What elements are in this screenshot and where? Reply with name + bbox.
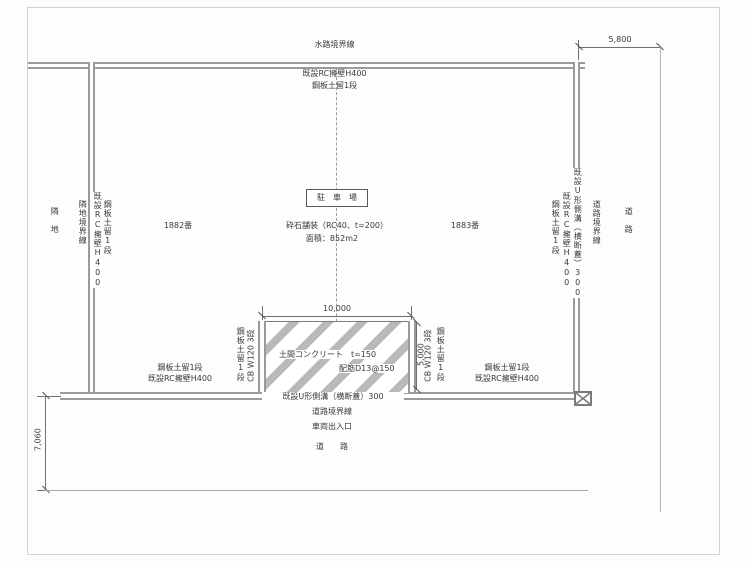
left-boundary-label: 隣地境界線 (78, 200, 87, 245)
right-gutter-label: 既設U形側溝（横断蓋）300 (572, 168, 583, 298)
road-width-dim-text: 7,060 (33, 420, 42, 460)
left-wall-label: 既設RC擁壁H400 (92, 192, 103, 288)
top-boundary-wall-line (28, 62, 585, 69)
right-road-dim-text: 5,800 (590, 35, 650, 44)
right-road-dim-line (578, 47, 660, 48)
right-wall-label: 既設RC擁壁H400 (562, 192, 571, 288)
bottom-left-wall-label: 既設RC擁壁H400 (120, 374, 240, 383)
bottom-gutter-label: 既設U形側溝（横断蓋）300 (262, 392, 404, 401)
waterway-boundary-label: 水路境界線 (282, 40, 387, 49)
pad-left-cb-wall (258, 321, 266, 392)
bottom-right-retention-label: 鋼板土留1段 (447, 363, 567, 372)
pole-symbol-x-icon (576, 393, 590, 404)
lot-number-right: 1883番 (435, 221, 495, 230)
road-far-edge-line (45, 490, 588, 491)
vehicle-entrance-label: 車両出入口 (292, 422, 372, 431)
adjacent-land-label: 隣 地 (50, 207, 59, 234)
rebar-spec-label: 配筋D13@150 (338, 364, 396, 373)
pad-left-cb-label: CB W120 3段 (246, 327, 255, 385)
parking-title: 駐 車 場 (317, 193, 357, 202)
right-road-boundary-label: 道路境界線 (592, 200, 601, 245)
slab-spec-label: 土間コンクリート t=150 (278, 350, 377, 359)
right-road-far-edge-line (660, 47, 661, 512)
pad-width-dim-text: 10,000 (307, 304, 367, 313)
bottom-road-boundary-label: 道路境界線 (292, 407, 372, 416)
pavement-spec-label: 砕石舗装（RC40、t=200） (257, 221, 417, 230)
pad-right-cb-label: CB W120 3段 (423, 327, 432, 385)
area-label: 面積：852m2 (277, 234, 387, 243)
bottom-road-label: 道 路 (292, 442, 372, 451)
right-retention-label: 鋼板土留1段 (551, 200, 560, 255)
road-width-dim-line (45, 396, 46, 490)
bottom-left-retention-label: 鋼板土留1段 (120, 363, 240, 372)
site-plan-drawing: 水路境界線 既設RC擁壁H400 鋼板土留1段 駐 車 場 砕石舗装（RC40、… (0, 0, 750, 563)
pole-symbol (574, 391, 592, 406)
pad-right-retention-label: 鋼板土留1段 (436, 327, 445, 382)
lot-number-left: 1882番 (148, 221, 208, 230)
pad-width-dim-line (262, 316, 412, 317)
right-road-ext-left (578, 40, 579, 60)
top-retention-label: 鋼板土留1段 (282, 81, 387, 90)
right-road-label: 道 路 (624, 207, 633, 234)
top-wall-label: 既設RC擁壁H400 (282, 69, 387, 78)
parking-title-box: 駐 車 場 (306, 189, 368, 207)
left-retention-label: 鋼板土留1段 (103, 200, 112, 255)
bottom-right-wall-label: 既設RC擁壁H400 (447, 374, 567, 383)
pad-right-cb-wall (408, 321, 416, 392)
